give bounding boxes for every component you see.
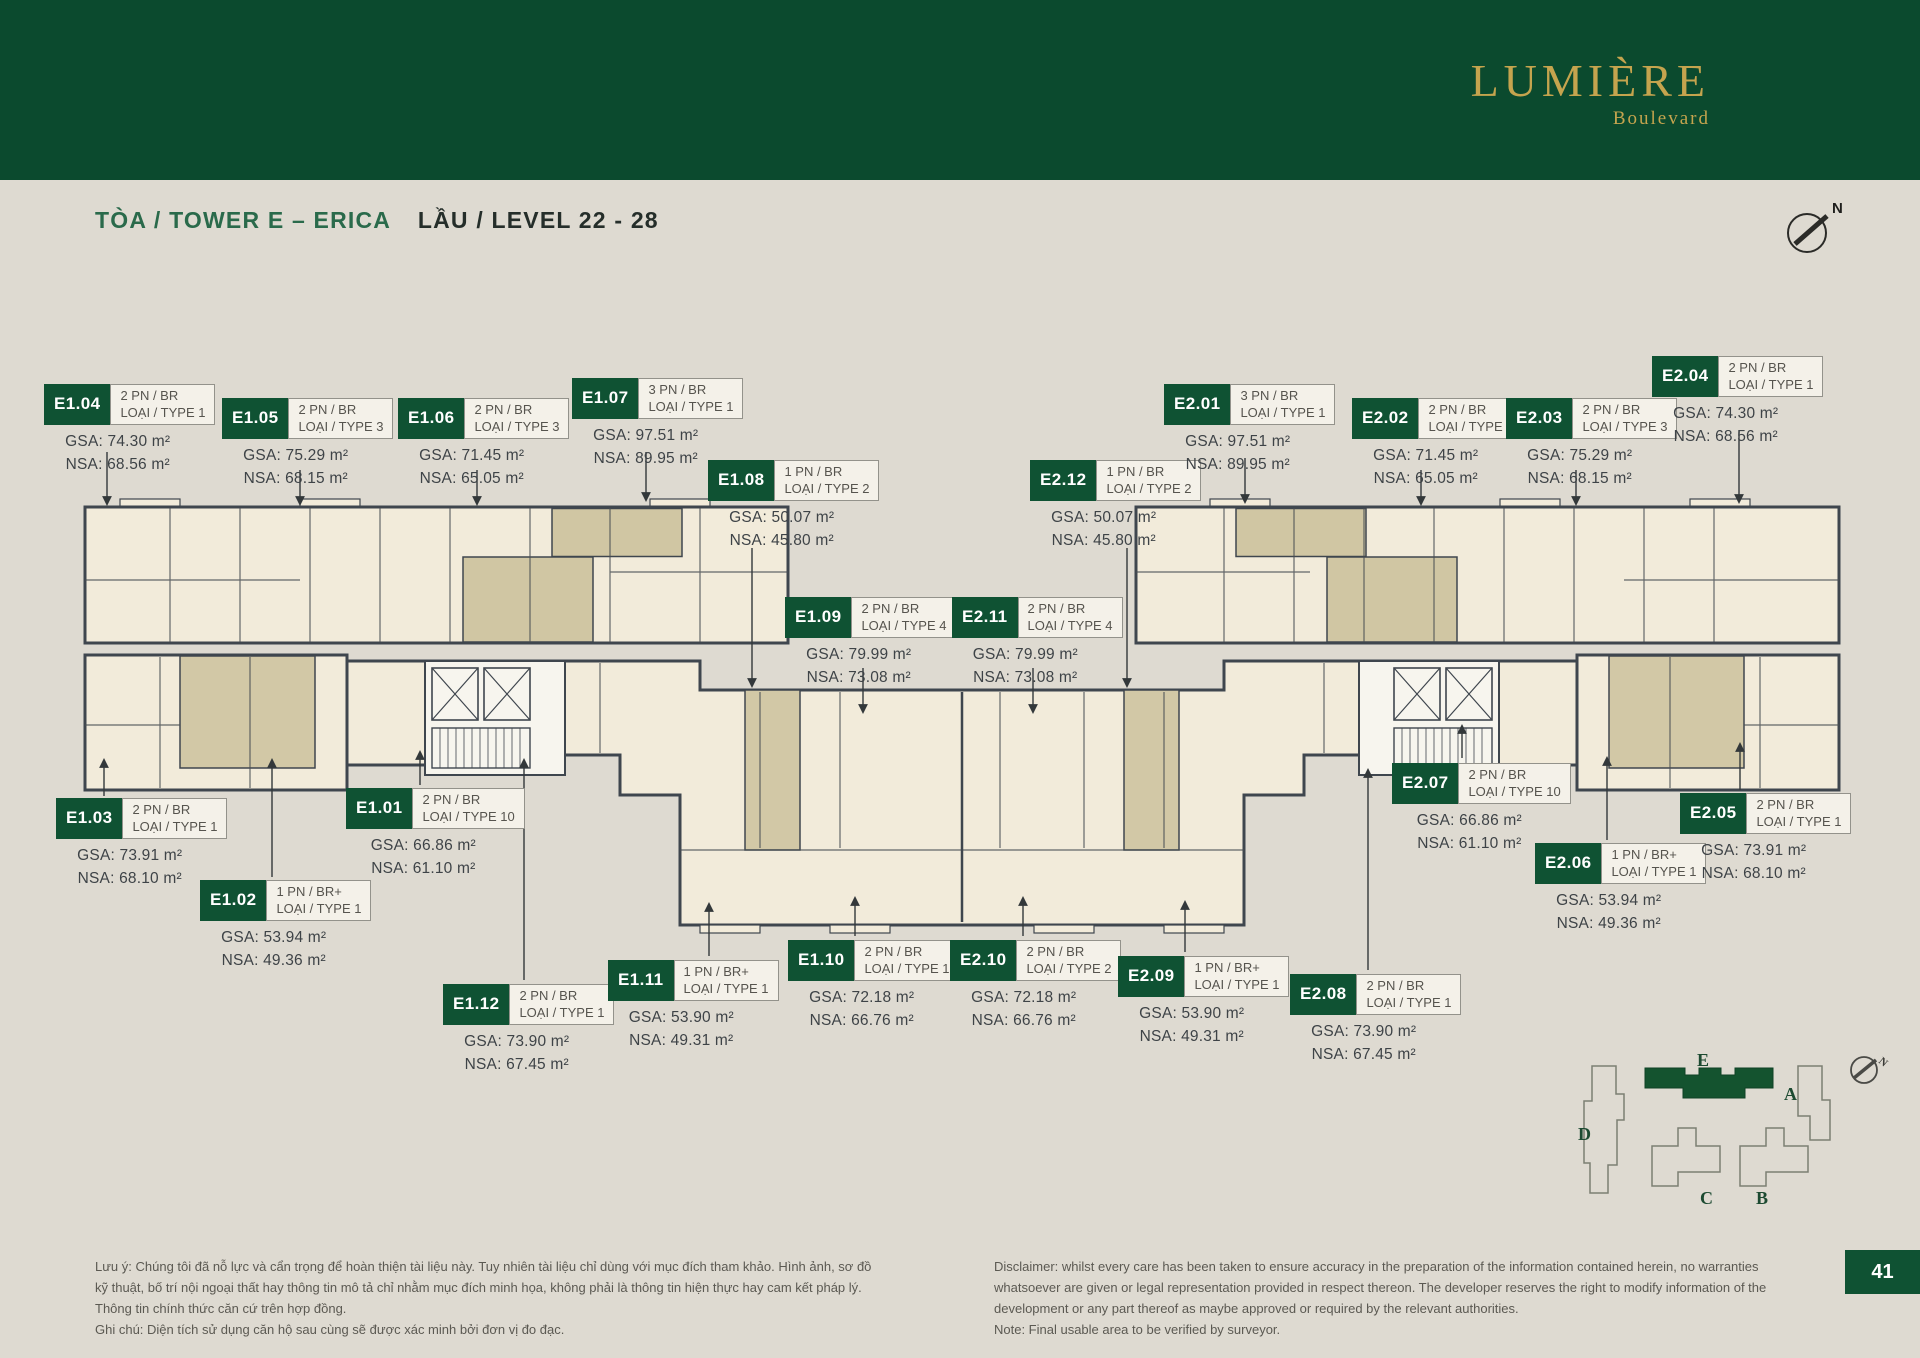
unit-type: LOẠI / TYPE 1 <box>120 405 205 422</box>
unit-gsa: GSA: 97.51 m² <box>593 427 698 445</box>
unit-nsa: NSA: 67.45 m² <box>1312 1046 1416 1064</box>
unit-label-row: E1.02 1 PN / BR+ LOẠI / TYPE 1 <box>200 880 371 921</box>
unit-label: E2.05 2 PN / BR LOẠI / TYPE 1 GSA: 73.91… <box>1680 793 1851 883</box>
minimap-label-a: A <box>1784 1084 1797 1104</box>
unit-type: LOẠI / TYPE 1 <box>519 1005 604 1022</box>
unit-gsa: GSA: 74.30 m² <box>1673 405 1778 423</box>
unit-type-box: 2 PN / BR LOẠI / TYPE 3 <box>288 398 393 439</box>
unit-code-badge: E2.04 <box>1652 356 1718 397</box>
unit-type: LOẠI / TYPE 2 <box>1026 961 1111 978</box>
unit-code-badge: E1.02 <box>200 880 266 921</box>
unit-label: E1.09 2 PN / BR LOẠI / TYPE 4 GSA: 79.99… <box>785 597 956 687</box>
unit-label-row: E2.08 2 PN / BR LOẠI / TYPE 1 <box>1290 974 1461 1015</box>
unit-type-box: 2 PN / BR LOẠI / TYPE 10 <box>412 788 524 829</box>
unit-nsa: NSA: 49.31 m² <box>629 1032 733 1050</box>
north-compass-icon: N <box>1788 200 1843 252</box>
unit-nsa: NSA: 61.10 m² <box>371 860 475 878</box>
unit-nsa: NSA: 45.80 m² <box>730 532 834 550</box>
unit-label-row: E1.07 3 PN / BR LOẠI / TYPE 1 <box>572 378 743 419</box>
unit-nsa: NSA: 66.76 m² <box>972 1012 1076 1030</box>
core-left <box>425 661 565 775</box>
unit-nsa: NSA: 65.05 m² <box>420 470 524 488</box>
unit-bedrooms: 2 PN / BR <box>298 402 383 419</box>
unit-bedrooms: 2 PN / BR <box>864 944 949 961</box>
unit-type-box: 1 PN / BR+ LOẠI / TYPE 1 <box>266 880 371 921</box>
unit-type: LOẠI / TYPE 3 <box>298 419 383 436</box>
unit-code-badge: E2.05 <box>1680 793 1746 834</box>
unit-label: E1.06 2 PN / BR LOẠI / TYPE 3 GSA: 71.45… <box>398 398 569 488</box>
unit-label: E2.04 2 PN / BR LOẠI / TYPE 1 GSA: 74.30… <box>1652 356 1823 446</box>
unit-gsa: GSA: 53.94 m² <box>1556 892 1661 910</box>
unit-type-box: 2 PN / BR LOẠI / TYPE 1 <box>854 940 959 981</box>
unit-gsa: GSA: 66.86 m² <box>1417 812 1522 830</box>
unit-code-badge: E1.12 <box>443 984 509 1025</box>
unit-label-row: E2.10 2 PN / BR LOẠI / TYPE 2 <box>950 940 1121 981</box>
unit-type-box: 2 PN / BR LOẠI / TYPE 4 <box>851 597 956 638</box>
unit-code-badge: E2.10 <box>950 940 1016 981</box>
unit-nsa: NSA: 65.05 m² <box>1374 470 1478 488</box>
unit-nsa: NSA: 49.36 m² <box>222 952 326 970</box>
unit-gsa: GSA: 79.99 m² <box>973 646 1078 664</box>
unit-gsa: GSA: 79.99 m² <box>806 646 911 664</box>
unit-code-badge: E2.06 <box>1535 843 1601 884</box>
unit-label-row: E2.09 1 PN / BR+ LOẠI / TYPE 1 <box>1118 956 1289 997</box>
unit-code-badge: E2.01 <box>1164 384 1230 425</box>
unit-nsa: NSA: 68.56 m² <box>1674 428 1778 446</box>
lower-left-wing <box>85 655 347 790</box>
unit-label: E1.04 2 PN / BR LOẠI / TYPE 1 GSA: 74.30… <box>44 384 215 474</box>
unit-code-badge: E2.09 <box>1118 956 1184 997</box>
unit-label: E1.08 1 PN / BR LOẠI / TYPE 2 GSA: 50.07… <box>708 460 879 550</box>
unit-gsa: GSA: 66.86 m² <box>371 837 476 855</box>
unit-label-row: E1.11 1 PN / BR+ LOẠI / TYPE 1 <box>608 960 779 1001</box>
unit-label-row: E1.09 2 PN / BR LOẠI / TYPE 4 <box>785 597 956 638</box>
unit-nsa: NSA: 49.36 m² <box>1557 915 1661 933</box>
unit-type: LOẠI / TYPE 1 <box>1366 995 1451 1012</box>
unit-label-row: E1.12 2 PN / BR LOẠI / TYPE 1 <box>443 984 614 1025</box>
unit-label-row: E1.10 2 PN / BR LOẠI / TYPE 1 <box>788 940 959 981</box>
unit-label: E2.07 2 PN / BR LOẠI / TYPE 10 GSA: 66.8… <box>1392 763 1571 853</box>
compass-n-label: N <box>1832 200 1843 217</box>
unit-nsa: NSA: 68.15 m² <box>244 470 348 488</box>
unit-nsa: NSA: 66.76 m² <box>810 1012 914 1030</box>
unit-label: E1.12 2 PN / BR LOẠI / TYPE 1 GSA: 73.90… <box>443 984 614 1074</box>
unit-bedrooms: 2 PN / BR <box>1026 944 1111 961</box>
unit-code-badge: E1.05 <box>222 398 288 439</box>
unit-code-badge: E1.09 <box>785 597 851 638</box>
unit-label-row: E2.02 2 PN / BR LOẠI / TYPE 3 <box>1352 398 1523 439</box>
unit-gsa: GSA: 53.90 m² <box>1139 1005 1244 1023</box>
unit-label: E1.07 3 PN / BR LOẠI / TYPE 1 GSA: 97.51… <box>572 378 743 468</box>
upper-right-wing <box>1136 499 1839 643</box>
unit-type: LOẠI / TYPE 1 <box>864 961 949 978</box>
unit-label: E1.11 1 PN / BR+ LOẠI / TYPE 1 GSA: 53.9… <box>608 960 779 1050</box>
unit-nsa: NSA: 68.15 m² <box>1528 470 1632 488</box>
unit-code-badge: E1.07 <box>572 378 638 419</box>
core-right <box>1359 661 1499 775</box>
unit-label-row: E2.11 2 PN / BR LOẠI / TYPE 4 <box>952 597 1123 638</box>
minimap-tower-a <box>1798 1066 1830 1140</box>
upper-left-wing <box>85 499 788 643</box>
unit-type-box: 2 PN / BR LOẠI / TYPE 10 <box>1458 763 1570 804</box>
unit-bedrooms: 1 PN / BR+ <box>1194 960 1279 977</box>
unit-code-badge: E1.03 <box>56 798 122 839</box>
unit-label-row: E1.01 2 PN / BR LOẠI / TYPE 10 <box>346 788 525 829</box>
unit-type: LOẠI / TYPE 10 <box>422 809 514 826</box>
unit-gsa: GSA: 74.30 m² <box>65 433 170 451</box>
unit-code-badge: E1.08 <box>708 460 774 501</box>
unit-bedrooms: 2 PN / BR <box>120 388 205 405</box>
unit-type-box: 2 PN / BR LOẠI / TYPE 1 <box>122 798 227 839</box>
unit-bedrooms: 1 PN / BR+ <box>684 964 769 981</box>
minimap-tower-e-highlight <box>1645 1068 1773 1098</box>
unit-code-badge: E1.10 <box>788 940 854 981</box>
unit-label-row: E1.03 2 PN / BR LOẠI / TYPE 1 <box>56 798 227 839</box>
unit-bedrooms: 1 PN / BR+ <box>276 884 361 901</box>
brochure-page: LUMIÈRE Boulevard TÒA / TOWER E – ERICA … <box>0 0 1920 1358</box>
unit-type-box: 2 PN / BR LOẠI / TYPE 4 <box>1018 597 1123 638</box>
unit-gsa: GSA: 73.90 m² <box>1311 1023 1416 1041</box>
unit-code-badge: E2.08 <box>1290 974 1356 1015</box>
unit-code-badge: E1.06 <box>398 398 464 439</box>
unit-label-row: E2.07 2 PN / BR LOẠI / TYPE 10 <box>1392 763 1571 804</box>
unit-type: LOẠI / TYPE 1 <box>684 981 769 998</box>
unit-label-row: E2.01 3 PN / BR LOẠI / TYPE 1 <box>1164 384 1335 425</box>
unit-type: LOẠI / TYPE 2 <box>784 481 869 498</box>
unit-gsa: GSA: 53.90 m² <box>629 1009 734 1027</box>
unit-label: E1.05 2 PN / BR LOẠI / TYPE 3 GSA: 75.29… <box>222 398 393 488</box>
unit-code-badge: E2.02 <box>1352 398 1418 439</box>
unit-type: LOẠI / TYPE 1 <box>648 399 733 416</box>
unit-label: E1.10 2 PN / BR LOẠI / TYPE 1 GSA: 72.18… <box>788 940 959 1030</box>
unit-code-badge: E2.12 <box>1030 460 1096 501</box>
minimap-compass-icon: N <box>1851 1055 1890 1083</box>
unit-bedrooms: 2 PN / BR <box>1428 402 1513 419</box>
unit-label-row: E1.08 1 PN / BR LOẠI / TYPE 2 <box>708 460 879 501</box>
unit-nsa: NSA: 68.10 m² <box>78 870 182 888</box>
unit-gsa: GSA: 50.07 m² <box>1051 509 1156 527</box>
unit-type-box: 2 PN / BR LOẠI / TYPE 1 <box>110 384 215 425</box>
unit-type-box: 3 PN / BR LOẠI / TYPE 1 <box>638 378 743 419</box>
unit-label: E2.09 1 PN / BR+ LOẠI / TYPE 1 GSA: 53.9… <box>1118 956 1289 1046</box>
unit-type: LOẠI / TYPE 3 <box>1428 419 1513 436</box>
unit-type: LOẠI / TYPE 3 <box>474 419 559 436</box>
unit-type-box: 1 PN / BR+ LOẠI / TYPE 1 <box>674 960 779 1001</box>
unit-label: E2.02 2 PN / BR LOẠI / TYPE 3 GSA: 71.45… <box>1352 398 1523 488</box>
unit-type-box: 2 PN / BR LOẠI / TYPE 1 <box>1746 793 1851 834</box>
unit-code-badge: E2.11 <box>952 597 1018 638</box>
unit-type: LOẠI / TYPE 1 <box>1756 814 1841 831</box>
unit-nsa: NSA: 45.80 m² <box>1052 532 1156 550</box>
unit-bedrooms: 3 PN / BR <box>1240 388 1325 405</box>
unit-gsa: GSA: 73.90 m² <box>464 1033 569 1051</box>
unit-nsa: NSA: 89.95 m² <box>1186 456 1290 474</box>
minimap-tower-c <box>1652 1128 1720 1186</box>
unit-bedrooms: 2 PN / BR <box>1728 360 1813 377</box>
unit-type-box: 2 PN / BR LOẠI / TYPE 1 <box>509 984 614 1025</box>
unit-gsa: GSA: 73.91 m² <box>77 847 182 865</box>
unit-type: LOẠI / TYPE 1 <box>1194 977 1279 994</box>
minimap-label-b: B <box>1756 1188 1768 1208</box>
unit-bedrooms: 3 PN / BR <box>648 382 733 399</box>
minimap-compass-n-label: N <box>1876 1055 1890 1069</box>
minimap-label-c: C <box>1700 1188 1713 1208</box>
unit-label: E2.08 2 PN / BR LOẠI / TYPE 1 GSA: 73.90… <box>1290 974 1461 1064</box>
minimap-tower-b <box>1740 1128 1808 1186</box>
unit-type-box: 2 PN / BR LOẠI / TYPE 2 <box>1016 940 1121 981</box>
unit-label: E2.11 2 PN / BR LOẠI / TYPE 4 GSA: 79.99… <box>952 597 1123 687</box>
unit-label: E1.02 1 PN / BR+ LOẠI / TYPE 1 GSA: 53.9… <box>200 880 371 970</box>
unit-type: LOẠI / TYPE 10 <box>1468 784 1560 801</box>
unit-bedrooms: 2 PN / BR <box>861 601 946 618</box>
unit-type-box: 2 PN / BR LOẠI / TYPE 1 <box>1718 356 1823 397</box>
unit-label-row: E1.05 2 PN / BR LOẠI / TYPE 3 <box>222 398 393 439</box>
unit-bedrooms: 2 PN / BR <box>1028 601 1113 618</box>
unit-code-badge: E1.01 <box>346 788 412 829</box>
unit-type: LOẠI / TYPE 1 <box>1240 405 1325 422</box>
unit-gsa: GSA: 53.94 m² <box>221 929 326 947</box>
unit-gsa: GSA: 50.07 m² <box>729 509 834 527</box>
unit-bedrooms: 1 PN / BR <box>784 464 869 481</box>
unit-nsa: NSA: 73.08 m² <box>973 669 1077 687</box>
unit-nsa: NSA: 61.10 m² <box>1417 835 1521 853</box>
unit-type: LOẠI / TYPE 4 <box>861 618 946 635</box>
unit-label-row: E1.06 2 PN / BR LOẠI / TYPE 3 <box>398 398 569 439</box>
unit-label: E1.01 2 PN / BR LOẠI / TYPE 10 GSA: 66.8… <box>346 788 525 878</box>
unit-gsa: GSA: 97.51 m² <box>1185 433 1290 451</box>
unit-code-badge: E1.11 <box>608 960 674 1001</box>
lower-right-wing <box>1577 655 1839 790</box>
unit-label: E2.01 3 PN / BR LOẠI / TYPE 1 GSA: 97.51… <box>1164 384 1335 474</box>
unit-bedrooms: 2 PN / BR <box>132 802 217 819</box>
unit-bedrooms: 2 PN / BR <box>519 988 604 1005</box>
unit-type: LOẠI / TYPE 1 <box>132 819 217 836</box>
minimap-label-e: E <box>1697 1050 1709 1070</box>
unit-code-badge: E2.07 <box>1392 763 1458 804</box>
unit-label: E1.03 2 PN / BR LOẠI / TYPE 1 GSA: 73.91… <box>56 798 227 888</box>
unit-type-box: 1 PN / BR LOẠI / TYPE 2 <box>774 460 879 501</box>
unit-type-box: 3 PN / BR LOẠI / TYPE 1 <box>1230 384 1335 425</box>
unit-gsa: GSA: 72.18 m² <box>809 989 914 1007</box>
unit-gsa: GSA: 75.29 m² <box>1527 447 1632 465</box>
unit-type: LOẠI / TYPE 2 <box>1106 481 1191 498</box>
unit-nsa: NSA: 68.56 m² <box>66 456 170 474</box>
unit-label-row: E2.05 2 PN / BR LOẠI / TYPE 1 <box>1680 793 1851 834</box>
unit-type: LOẠI / TYPE 1 <box>276 901 361 918</box>
unit-bedrooms: 2 PN / BR <box>422 792 514 809</box>
unit-label-row: E1.04 2 PN / BR LOẠI / TYPE 1 <box>44 384 215 425</box>
unit-gsa: GSA: 73.91 m² <box>1701 842 1806 860</box>
unit-label-row: E2.04 2 PN / BR LOẠI / TYPE 1 <box>1652 356 1823 397</box>
unit-type: LOẠI / TYPE 4 <box>1028 618 1113 635</box>
unit-bedrooms: 2 PN / BR <box>1468 767 1560 784</box>
unit-bedrooms: 2 PN / BR <box>1366 978 1451 995</box>
site-minimap: D E A C B N <box>1578 1050 1890 1208</box>
unit-code-badge: E1.04 <box>44 384 110 425</box>
unit-nsa: NSA: 49.31 m² <box>1140 1028 1244 1046</box>
unit-gsa: GSA: 71.45 m² <box>1373 447 1478 465</box>
unit-nsa: NSA: 68.10 m² <box>1702 865 1806 883</box>
unit-gsa: GSA: 75.29 m² <box>243 447 348 465</box>
unit-nsa: NSA: 89.95 m² <box>594 450 698 468</box>
unit-nsa: NSA: 67.45 m² <box>465 1056 569 1074</box>
unit-bedrooms: 2 PN / BR <box>1756 797 1841 814</box>
unit-type-box: 1 PN / BR+ LOẠI / TYPE 1 <box>1184 956 1289 997</box>
unit-type: LOẠI / TYPE 1 <box>1728 377 1813 394</box>
unit-nsa: NSA: 73.08 m² <box>807 669 911 687</box>
unit-type-box: 2 PN / BR LOẠI / TYPE 1 <box>1356 974 1461 1015</box>
unit-code-badge: E2.03 <box>1506 398 1572 439</box>
unit-bedrooms: 2 PN / BR <box>474 402 559 419</box>
unit-gsa: GSA: 71.45 m² <box>419 447 524 465</box>
unit-gsa: GSA: 72.18 m² <box>971 989 1076 1007</box>
minimap-label-d: D <box>1578 1124 1591 1144</box>
unit-type-box: 2 PN / BR LOẠI / TYPE 3 <box>464 398 569 439</box>
unit-label: E2.10 2 PN / BR LOẠI / TYPE 2 GSA: 72.18… <box>950 940 1121 1030</box>
